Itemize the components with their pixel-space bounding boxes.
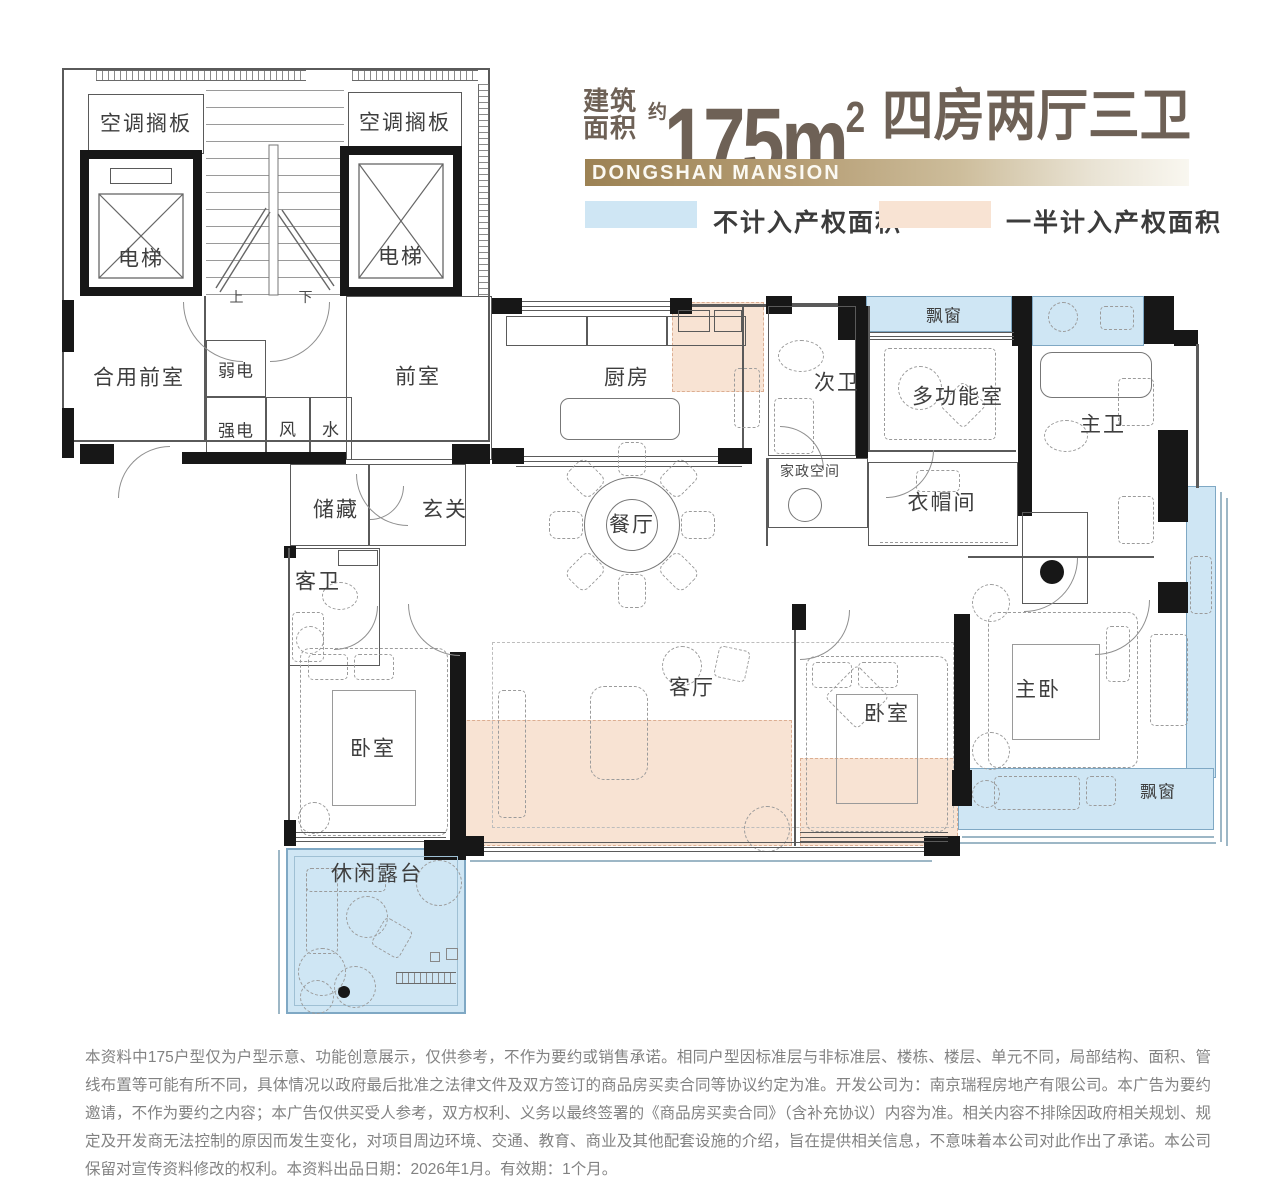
room-label-cloakroom: 衣帽间: [908, 493, 977, 514]
wall-segment: [1018, 336, 1032, 516]
room-label-master-bath: 主卫: [1080, 415, 1126, 436]
wall-segment: [462, 836, 484, 856]
area-label: 建筑 面积: [583, 88, 637, 142]
disclaimer-text: 本资料中175户型仅为户型示意、功能创意展示，仅供参考，不作为要约或销售承诺。相…: [85, 1044, 1211, 1184]
wall-segment: [952, 770, 972, 806]
drain-icon: [446, 948, 458, 960]
legend-label-half-counted: 一半计入产权面积: [1006, 203, 1222, 239]
wall-segment: [868, 306, 870, 452]
room-label-dining: 餐厅: [609, 515, 655, 536]
room-label-guest-bath: 客卫: [295, 572, 341, 593]
room-label-master-bedroom: 主卧: [1015, 680, 1061, 701]
elevator-left-panel: [110, 168, 172, 184]
room-label-elevator-right: 电梯: [378, 247, 424, 268]
area-label-line2: 面积: [583, 115, 637, 142]
room-label-bay-window-bottom: 飘窗: [1140, 784, 1176, 801]
wall-segment: [288, 548, 290, 846]
drain-icon: [430, 952, 440, 962]
room-label-water-shaft: 水: [322, 422, 340, 439]
kitchen-sink: [714, 310, 742, 332]
brand-bar: DONGSHAN MANSION: [585, 159, 1189, 186]
stool-icon: [1086, 776, 1116, 806]
washer-icon: [788, 488, 822, 522]
wall-segment: [766, 458, 768, 546]
pillow-icon: [812, 662, 852, 688]
terrace-step-line: [278, 850, 280, 1014]
fan-coil-icon: [296, 626, 324, 654]
wall-segment: [692, 304, 768, 307]
window: [868, 332, 1014, 340]
wall-segment: [450, 652, 466, 842]
balcony-step-line: [470, 860, 932, 862]
wall-segment: [954, 614, 970, 772]
room-label-bay-window-top: 飘窗: [926, 308, 962, 325]
fan-coil-icon: [972, 584, 1010, 622]
sink-icon: [338, 550, 378, 566]
stove-icon: [734, 368, 760, 428]
room-label-second-bath: 次卫: [814, 373, 860, 394]
core-hatch-top-left: [96, 70, 306, 81]
room-label-elevator-left: 电梯: [118, 249, 164, 270]
window: [800, 832, 948, 842]
room-label-front-room: 前室: [395, 367, 441, 388]
room-label-entryway: 玄关: [422, 500, 468, 521]
fan-coil-icon: [972, 732, 1010, 770]
counter-icon: [1100, 306, 1134, 330]
room-label-living: 客厅: [669, 678, 715, 699]
wall-segment: [62, 408, 74, 458]
plant-icon: [300, 980, 334, 1014]
lounge-chair-icon: [590, 686, 648, 780]
tv-console-icon: [498, 690, 526, 818]
room-label-multifunction: 多功能室: [912, 387, 1004, 408]
fan-coil-icon: [972, 780, 1000, 808]
wall-segment: [1158, 582, 1188, 613]
window-seat-icon: [1190, 556, 1212, 614]
door-arc: [118, 446, 170, 498]
stairs-up-label: 上: [230, 290, 245, 304]
wall-segment: [1158, 430, 1188, 522]
room-label-ac-shelf-right: 空调搁板: [359, 113, 451, 134]
plant-center-dot: [338, 986, 350, 998]
room-label-weak-electric: 弱电: [218, 363, 254, 380]
wall-segment: [284, 546, 296, 558]
core-hatch-right: [478, 84, 489, 296]
room-label-housekeeping: 家政空间: [780, 464, 840, 478]
wall-segment: [80, 444, 114, 464]
legend-label-not-counted: 不计入产权面积: [713, 203, 902, 239]
chaise-icon: [1150, 634, 1188, 726]
pillow-icon: [858, 662, 898, 688]
shower-seat-icon: [1040, 560, 1064, 584]
wall-segment: [452, 444, 490, 464]
balcony-step-line: [1226, 498, 1228, 846]
plant-icon: [713, 645, 751, 683]
balcony-step-line: [1220, 492, 1222, 842]
kitchen-island: [560, 398, 680, 440]
wall-segment: [182, 452, 346, 464]
wall-segment: [718, 448, 752, 464]
room-label-bedroom-right: 卧室: [864, 704, 910, 725]
fan-coil-icon: [298, 802, 330, 834]
room-label-strong-electric: 强电: [218, 423, 254, 440]
room-label-terrace: 休闲露台: [331, 864, 423, 885]
room-label-bedroom-left: 卧室: [350, 739, 396, 760]
legend-swatch-not-counted: [585, 201, 697, 228]
balcony-step-line: [958, 842, 1216, 844]
room-label-vent-shaft: 风: [279, 422, 297, 439]
chair-icon: [618, 574, 646, 608]
bay-window-right-strip-fill: [1186, 486, 1216, 778]
chair-icon: [681, 511, 715, 539]
core-hatch-top-right: [352, 70, 478, 81]
kitchen-sink: [678, 310, 710, 332]
window: [522, 301, 670, 311]
legend-swatch-half-counted: [879, 201, 991, 228]
room-label-ac-shelf-left: 空调搁板: [100, 114, 192, 135]
vanity-icon: [1118, 496, 1154, 544]
wall-segment: [1196, 344, 1199, 488]
cabinet-divider: [586, 316, 588, 346]
balcony-step-line: [962, 836, 1214, 838]
bench-icon: [994, 776, 1080, 810]
staircase-flight-lines: [206, 90, 344, 298]
pillow-icon: [354, 654, 394, 680]
cabinet-divider: [666, 316, 668, 346]
chair-icon: [618, 442, 646, 476]
pillow-icon: [1106, 626, 1130, 682]
floorplan-page: 建筑 面积 约 175m2 四房两厅三卫 DONGSHAN MANSION 不计…: [0, 0, 1264, 1187]
room-label-storage: 储藏: [313, 500, 359, 521]
chair-icon: [549, 511, 583, 539]
wall-segment: [284, 820, 296, 846]
area-exponent: 2: [846, 93, 866, 142]
area-label-line1: 建筑: [583, 88, 637, 115]
kitchen-cabinets: [506, 316, 746, 346]
wall-segment: [1174, 330, 1198, 346]
room-label-kitchen: 厨房: [604, 368, 650, 389]
pillow-icon: [308, 654, 348, 680]
room-label-shared-front-room: 合用前室: [93, 368, 185, 389]
wall-segment: [62, 300, 74, 352]
grille-icon: [396, 972, 456, 984]
stairs-down-label: 下: [299, 290, 314, 304]
washbasin-icon: [1048, 302, 1078, 332]
window: [484, 842, 924, 852]
wardrobe-line: [880, 542, 1008, 543]
layout-text: 四房两厅三卫: [882, 85, 1191, 147]
wall-segment: [1144, 296, 1174, 344]
toilet-icon: [778, 340, 824, 372]
wall-segment: [492, 298, 522, 314]
wall-segment: [492, 448, 524, 464]
wall-segment: [794, 608, 796, 846]
ottoman-icon: [916, 470, 960, 492]
